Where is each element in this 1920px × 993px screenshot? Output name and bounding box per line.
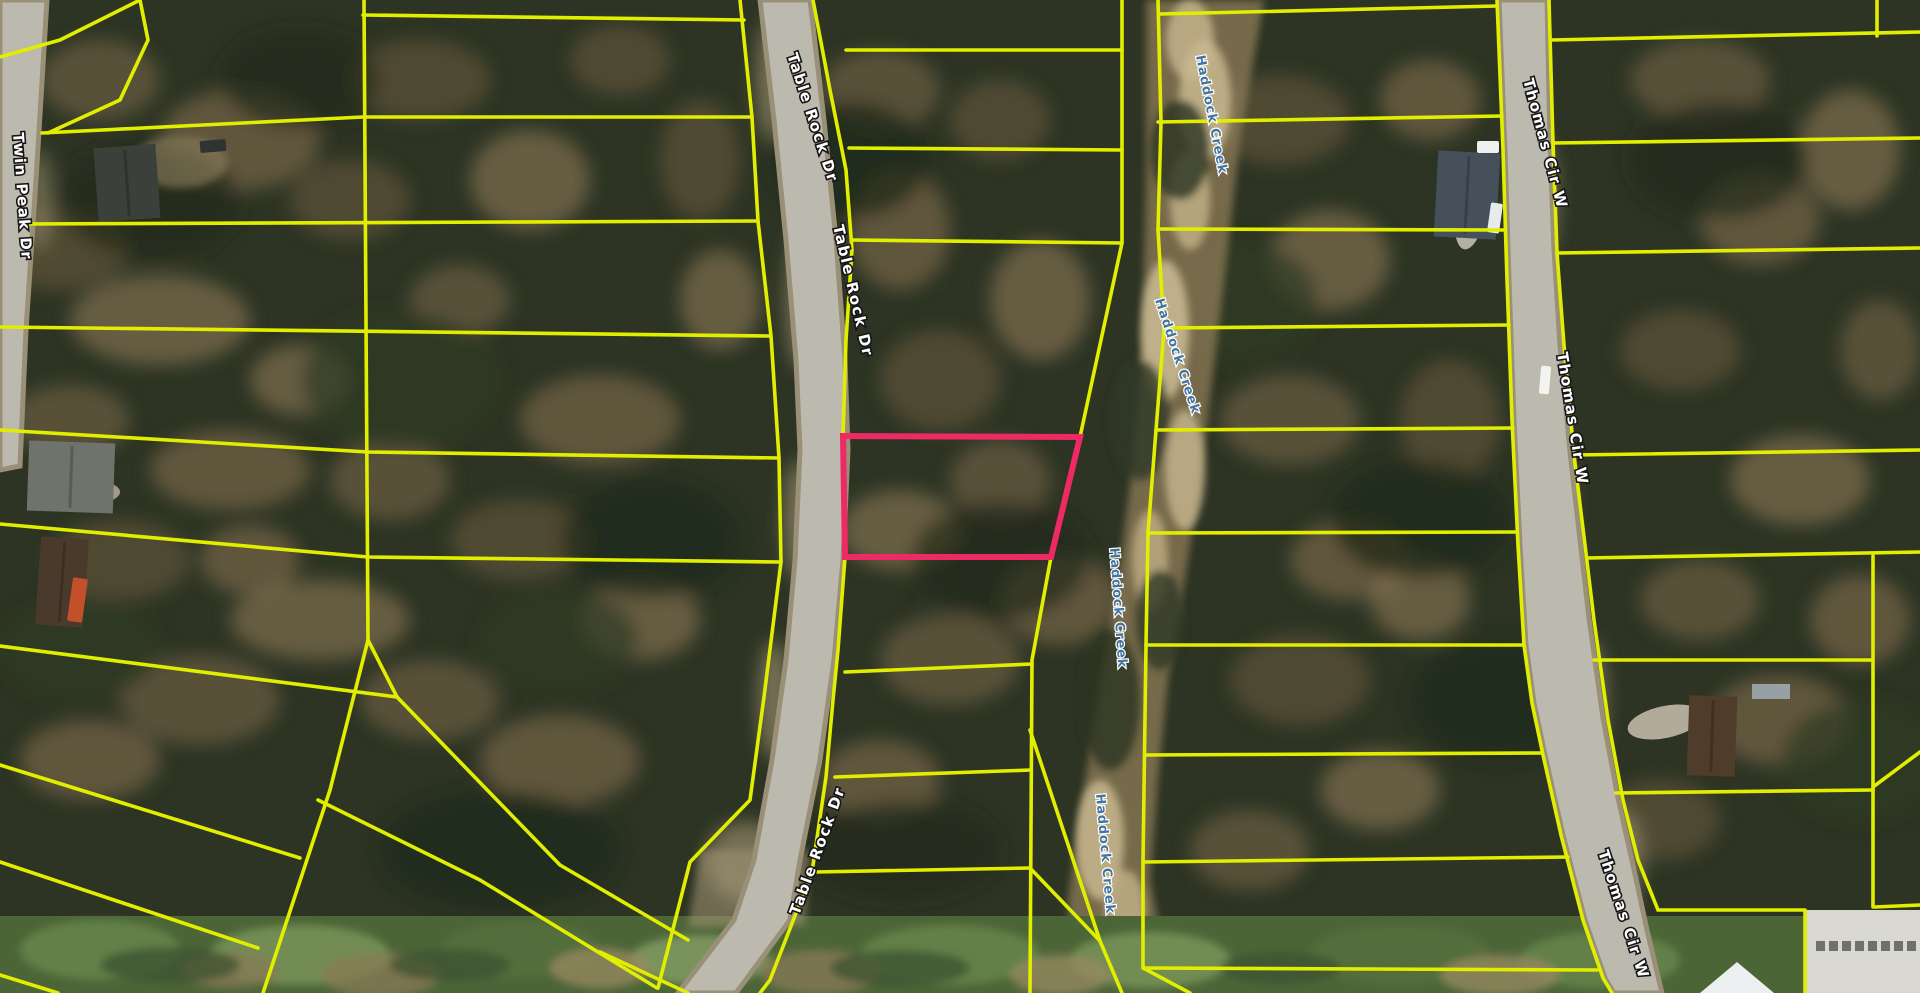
parcel-boundary-line [1156, 428, 1513, 430]
vehicle [200, 139, 227, 153]
parcel-boundary-line [1145, 753, 1542, 755]
parcel-boundary-line [1158, 229, 1505, 230]
parking-stall-mark [1816, 941, 1825, 951]
parcel-boundary-line [1148, 532, 1517, 533]
parcel-boundary-line [849, 148, 1122, 150]
parcel-boundary-line [1143, 968, 1597, 970]
satellite-map[interactable]: Table Rock DrTable Rock DrTable Rock DrT… [0, 0, 1920, 993]
parcel-boundary-line [1875, 905, 1920, 907]
parking-stall-mark [1881, 941, 1890, 951]
large-building-roof [1806, 910, 1920, 993]
parking-stall-mark [1868, 941, 1877, 951]
house-roof [1752, 684, 1790, 699]
satellite-map-canvas[interactable]: Table Rock DrTable Rock DrTable Rock DrT… [0, 0, 1920, 993]
parking-stall-mark [1829, 941, 1838, 951]
parking-stall-mark [1907, 941, 1916, 951]
vehicle [1477, 141, 1499, 153]
parking-stall-mark [1842, 941, 1851, 951]
parking-stall-mark [1855, 941, 1864, 951]
parking-stall-mark [1894, 941, 1903, 951]
